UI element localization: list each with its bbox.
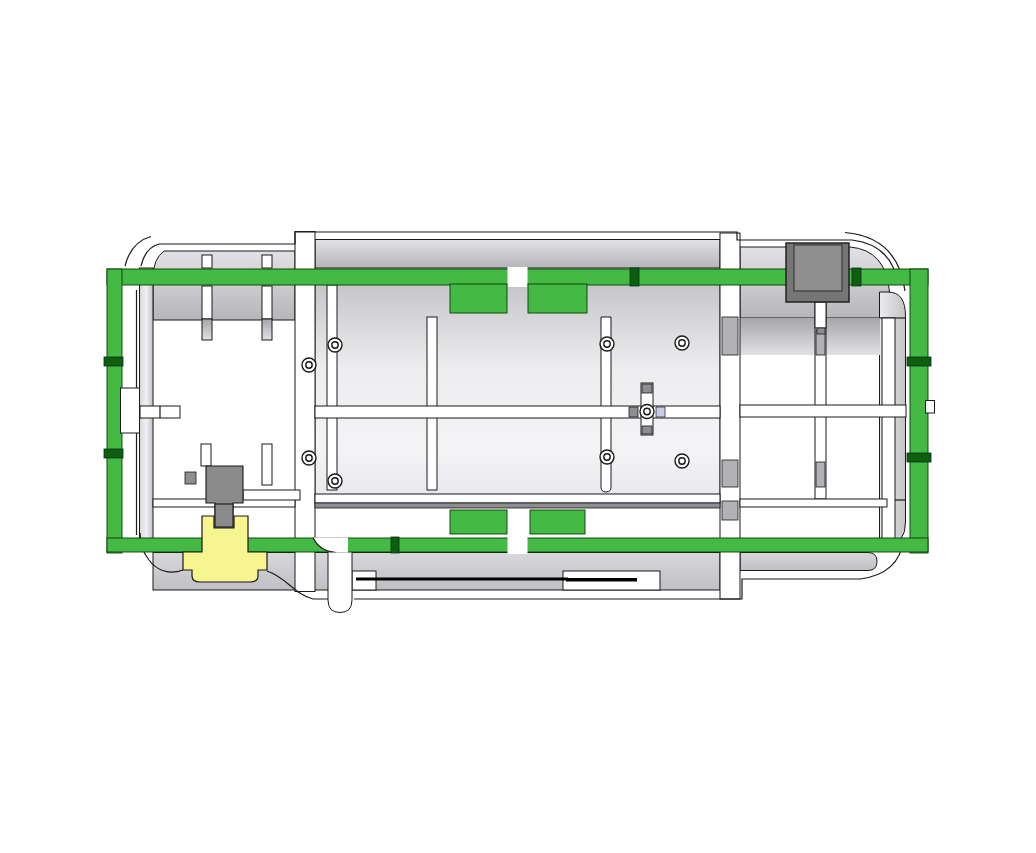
valve-stem-tab [185, 472, 196, 484]
screw-boss [302, 358, 316, 372]
rib-slot [262, 286, 272, 319]
gasket-block [528, 284, 587, 313]
slab-slot [356, 578, 568, 581]
rib-slot [202, 286, 212, 319]
corner-connector[interactable] [786, 243, 849, 302]
rib [427, 317, 437, 490]
right-bay-shading [826, 318, 880, 355]
lower-wall-gray-edge [315, 503, 720, 508]
top-wall-left [153, 251, 295, 320]
gasket-notch [852, 268, 861, 286]
screw-boss [600, 450, 614, 464]
lattice-gray-block [816, 462, 825, 487]
connector-stem-slot [815, 302, 826, 328]
rib-bar [243, 490, 300, 500]
right-edge-tab [926, 401, 935, 414]
left-edge-box [121, 388, 140, 433]
drain-tube[interactable] [328, 553, 352, 613]
rib-slot [262, 444, 272, 485]
screw-boss [675, 454, 689, 468]
rib [327, 285, 337, 490]
screw-boss [328, 474, 342, 488]
center-floor-panel [315, 285, 720, 504]
right-bay-shading [740, 318, 815, 355]
gasket-gap [508, 536, 528, 554]
lower-wall-center [315, 494, 720, 503]
gasket-notch [104, 449, 123, 458]
screw-boss [675, 336, 689, 350]
slab-slot [566, 578, 637, 582]
connector-stem-cap [817, 328, 825, 334]
gasket-block [530, 510, 585, 534]
top-wall-center [315, 240, 720, 269]
valve-stem-tip [215, 504, 233, 527]
gasket-notch [630, 268, 639, 286]
screw-boss [640, 405, 654, 419]
gasket-notch [907, 357, 931, 366]
gasket-notch [391, 537, 399, 553]
lattice-wall-horizontal [740, 499, 887, 507]
cross-rib-cap [642, 384, 652, 393]
gasket-left-band [107, 269, 122, 553]
gasket-notch [104, 357, 123, 366]
cad-viewport[interactable] [0, 0, 1036, 853]
rib-tab [202, 319, 212, 340]
bottom-slab-right [740, 553, 877, 571]
rib-slot [201, 444, 211, 466]
gasket-block [450, 510, 507, 534]
mid-wall-lavender-segment [656, 407, 665, 417]
mid-wall-gray-segment [629, 407, 638, 417]
rib-tab [262, 319, 272, 340]
left-wall [140, 268, 154, 540]
rib-slot [202, 255, 212, 268]
gasket-notch [907, 453, 931, 462]
lattice-gray-block [722, 317, 738, 355]
rib-slot [262, 255, 272, 268]
lattice-gray-block [722, 501, 738, 520]
connector-inner [794, 245, 842, 291]
screw-boss [302, 451, 316, 465]
separator-channel-left [295, 232, 315, 592]
gasket-block [450, 284, 507, 313]
screw-boss [600, 337, 614, 351]
lattice-gray-block [722, 460, 738, 487]
gasket-gap [508, 267, 528, 287]
screw-boss [328, 338, 342, 352]
cross-rib-cap [642, 426, 652, 434]
lattice-wall-horizontal [740, 405, 906, 417]
